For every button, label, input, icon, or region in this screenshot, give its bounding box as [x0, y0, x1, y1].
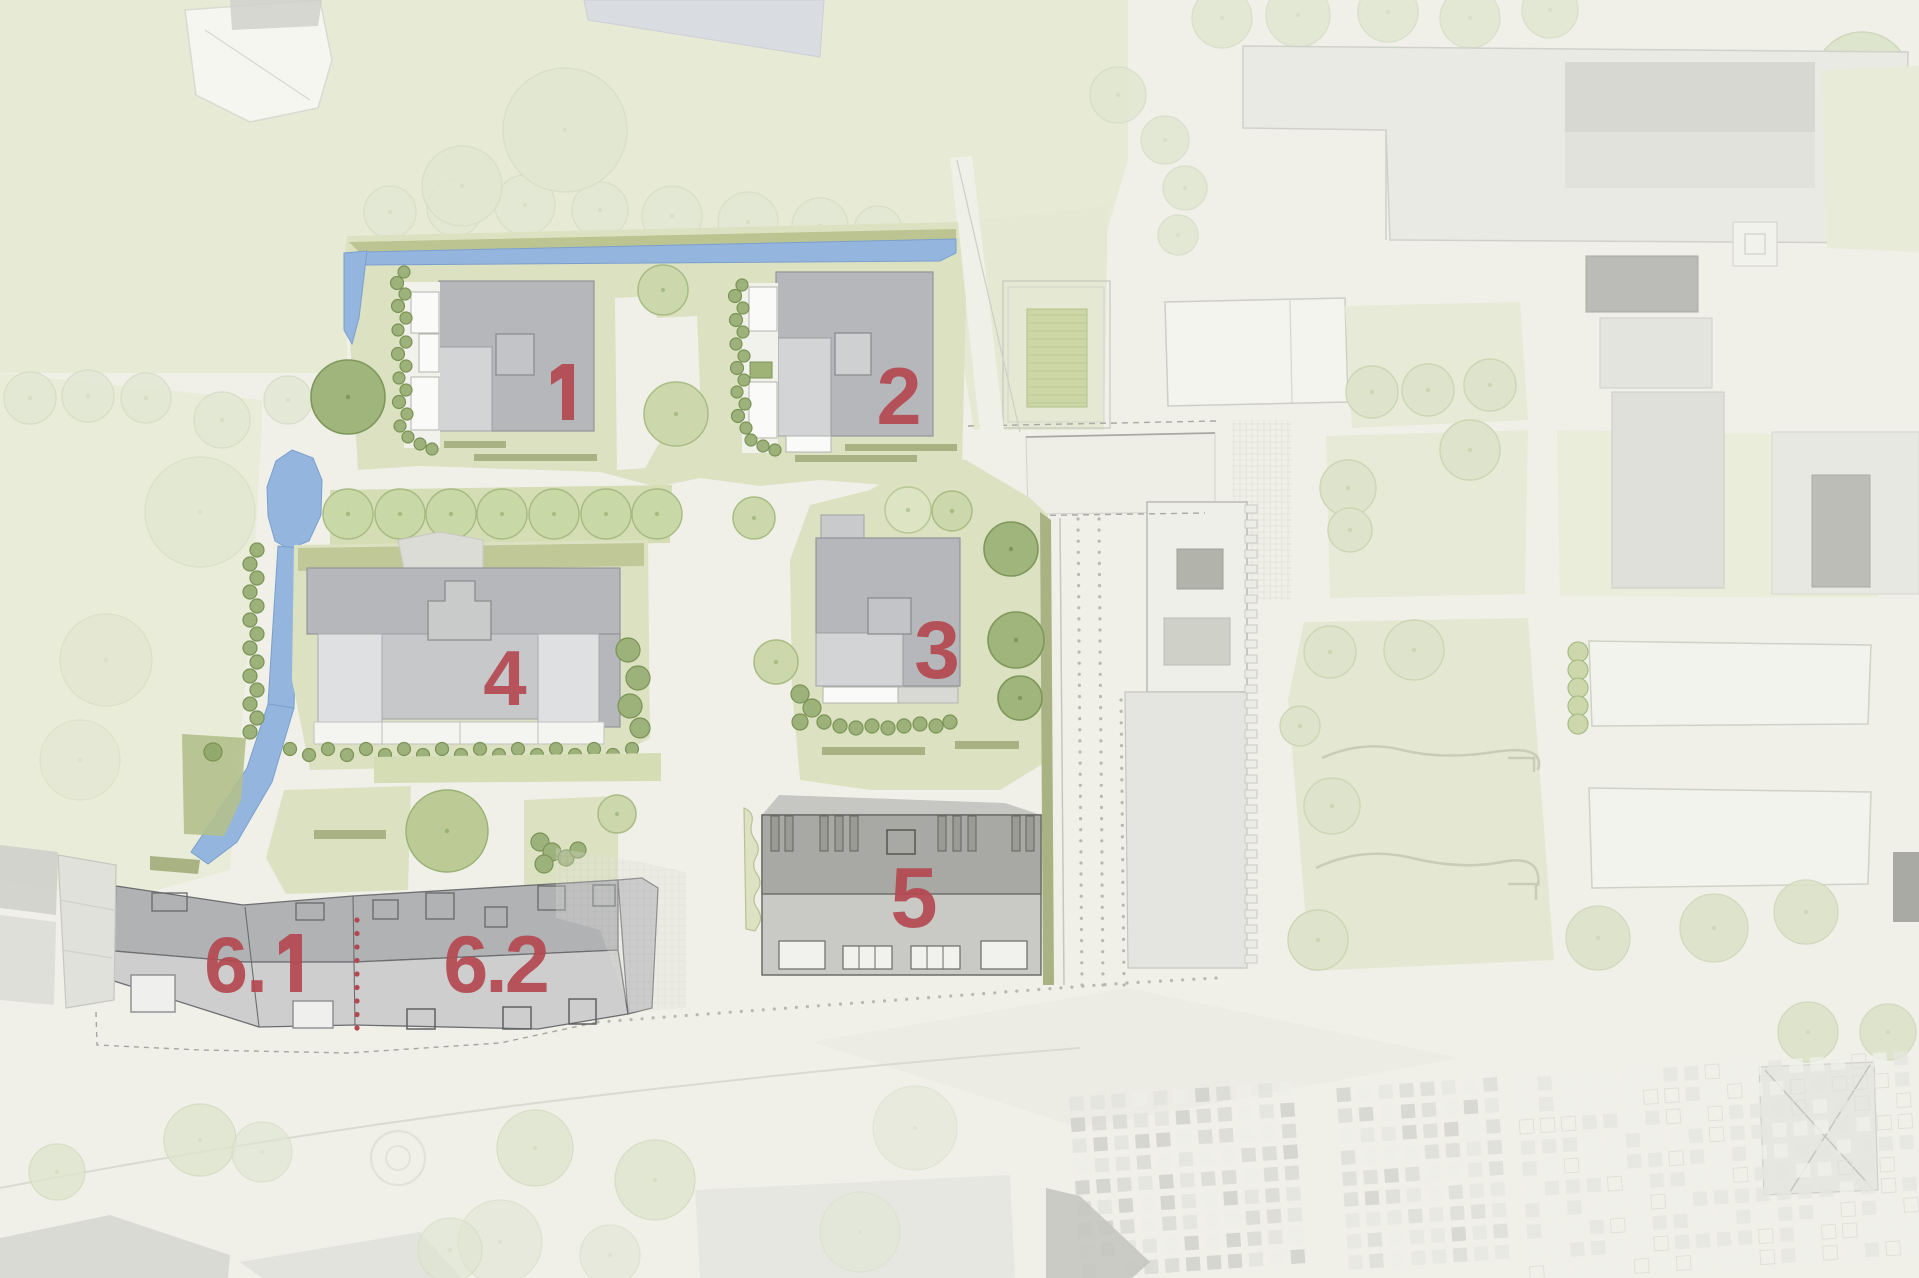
svg-text:6.: 6.: [204, 920, 266, 1009]
svg-text:4: 4: [483, 634, 526, 722]
svg-text:2: 2: [876, 352, 921, 442]
svg-text:3: 3: [914, 605, 960, 696]
svg-text:6.2: 6.2: [443, 920, 547, 1010]
svg-text:5: 5: [890, 851, 937, 946]
